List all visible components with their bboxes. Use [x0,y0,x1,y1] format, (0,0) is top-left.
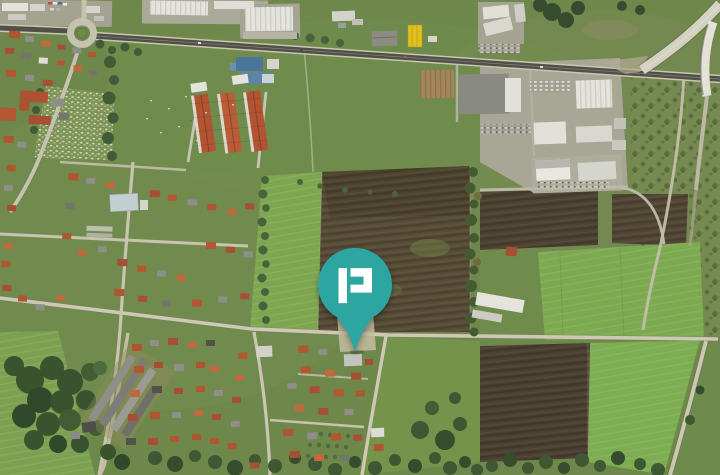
property-marker[interactable] [317,248,393,355]
pin-balloon [318,248,392,352]
atmospheric-haze [0,0,720,475]
pin-icon [317,248,393,355]
aerial-imagery [0,0,720,475]
map-viewport[interactable] [0,0,720,475]
